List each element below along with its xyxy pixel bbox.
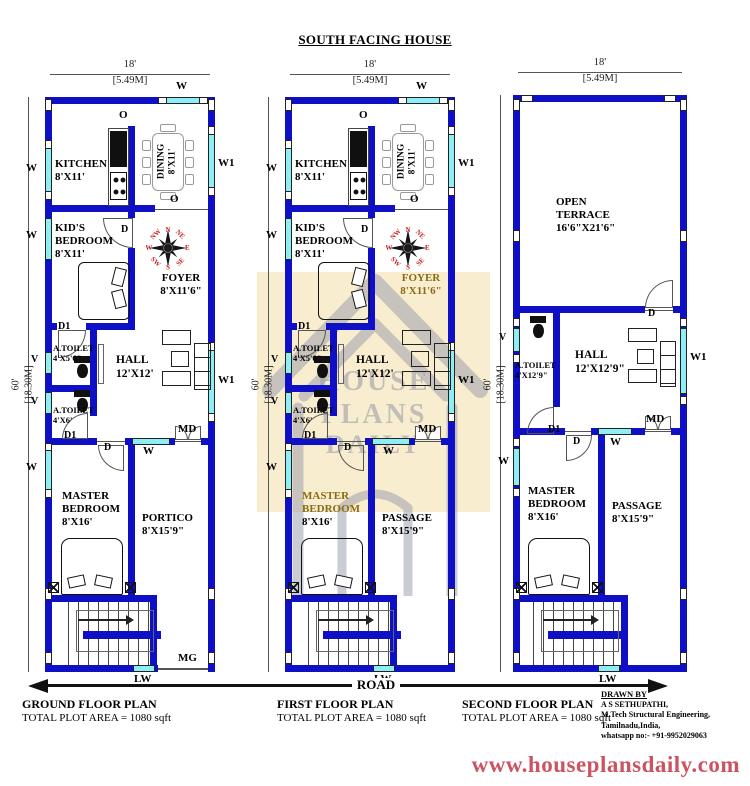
ground-floor-area: TOTAL PLOT AREA = 1080 sqft <box>22 712 171 724</box>
author-name: A S SETHUPATHI, <box>601 700 710 710</box>
credits-block: DRAWN BY A S SETHUPATHI, M.Tech Structur… <box>601 689 710 742</box>
second-floor-area: TOTAL PLOT AREA = 1080 sqft <box>462 712 611 724</box>
drawn-by-heading: DRAWN BY <box>601 689 710 700</box>
first-floor-area: TOTAL PLOT AREA = 1080 sqft <box>277 712 426 724</box>
footer: GROUND FLOOR PLAN TOTAL PLOT AREA = 1080… <box>0 0 750 786</box>
second-floor-title: SECOND FLOOR PLAN <box>462 697 593 712</box>
author-location: Tamilnadu,India, <box>601 721 710 731</box>
author-qualification: M.Tech Structural Engineering, <box>601 710 710 720</box>
author-phone: whatsapp no:- +91-9952029063 <box>601 731 710 741</box>
floor-plan-sheet: SOUTH FACING HOUSE HOUSE PLANS DAILY 18'… <box>0 0 750 786</box>
website-link: www.houseplansdaily.com <box>400 752 740 778</box>
ground-floor-title: GROUND FLOOR PLAN <box>22 697 157 712</box>
first-floor-title: FIRST FLOOR PLAN <box>277 697 393 712</box>
